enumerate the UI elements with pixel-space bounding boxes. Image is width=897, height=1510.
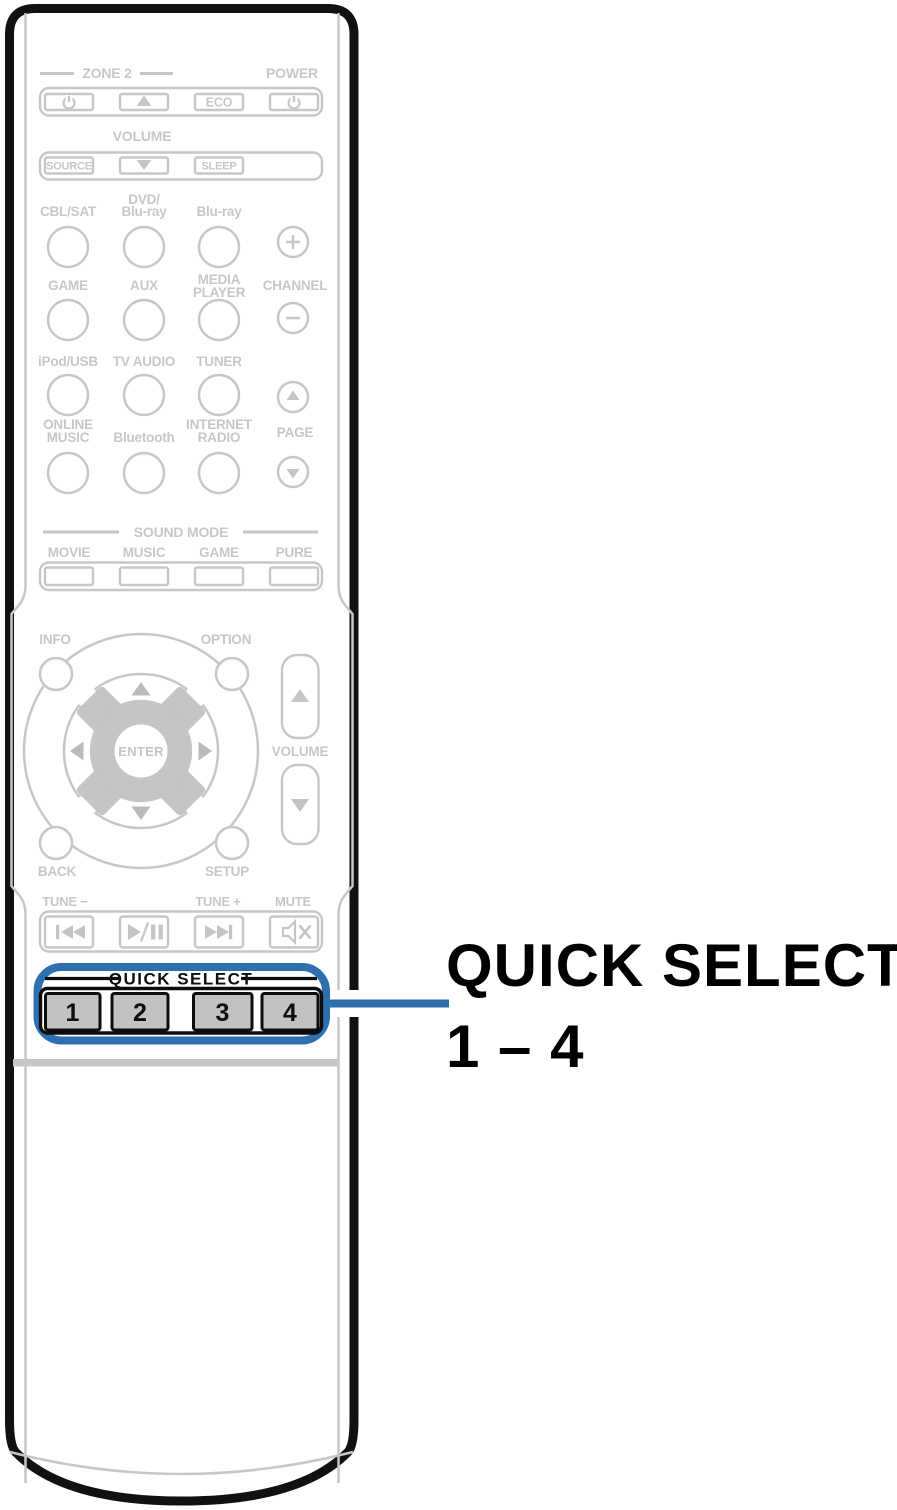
- game-mode-label: GAME: [199, 545, 239, 560]
- option-label: OPTION: [201, 632, 252, 647]
- cbl-sat-label: CBL/SAT: [40, 204, 97, 219]
- bluetooth-label: Bluetooth: [113, 430, 174, 445]
- quick-select-1-label: 1: [66, 999, 80, 1027]
- media-player-button: [199, 300, 239, 340]
- quick-select-4-label: 4: [283, 999, 297, 1027]
- power-label: POWER: [266, 65, 318, 81]
- music-button: [120, 568, 168, 586]
- sound-mode-label: SOUND MODE: [134, 524, 228, 540]
- dvd-label-line2: Blu-ray: [121, 204, 167, 219]
- quick-select-label: QUICK SELECT: [109, 970, 254, 989]
- eco-button-label: ECO: [206, 96, 233, 110]
- bluetooth-button: [124, 453, 164, 493]
- ipod-usb-button: [48, 375, 88, 415]
- movie-label: MOVIE: [48, 545, 91, 560]
- setup-label: SETUP: [205, 864, 249, 879]
- game-mode-button: [195, 568, 243, 586]
- internet-radio-button: [199, 453, 239, 493]
- online-music-button: [48, 453, 88, 493]
- tv-audio-label: TV AUDIO: [113, 354, 175, 369]
- cbl-sat-button: [48, 227, 88, 267]
- volume-label-top: VOLUME: [113, 128, 172, 144]
- bluray-label: Blu-ray: [196, 204, 242, 219]
- page-label: PAGE: [277, 425, 314, 440]
- callout: QUICK SELECT 1 – 4: [446, 932, 897, 1080]
- cursor-cross: ENTER: [75, 685, 207, 817]
- volume-label: VOLUME: [272, 744, 329, 759]
- internet-radio-label-line2: RADIO: [198, 430, 241, 445]
- pure-button: [270, 568, 318, 586]
- setup-button: [216, 827, 248, 859]
- aux-button: [124, 300, 164, 340]
- back-button: [40, 827, 72, 859]
- movie-button: [45, 568, 93, 586]
- manual-illustration: ZONE 2 POWER ECO VOLUME SOURCE SLEEP: [0, 0, 897, 1510]
- tune-minus-label: TUNE −: [42, 894, 88, 909]
- aux-label: AUX: [130, 278, 158, 293]
- source-button-label: SOURCE: [46, 161, 92, 173]
- music-label: MUSIC: [123, 545, 166, 560]
- channel-label: CHANNEL: [263, 278, 328, 293]
- info-label: INFO: [39, 632, 70, 647]
- mute-label: MUTE: [275, 894, 312, 909]
- remote-diagram: ZONE 2 POWER ECO VOLUME SOURCE SLEEP: [0, 0, 897, 1510]
- tune-plus-label: TUNE +: [195, 894, 241, 909]
- online-music-label-line2: MUSIC: [47, 430, 90, 445]
- game-label: GAME: [48, 278, 88, 293]
- option-button: [216, 658, 248, 690]
- callout-title-line1: QUICK SELECT: [446, 932, 897, 999]
- quick-select-2-label: 2: [133, 999, 147, 1027]
- enter-label: ENTER: [118, 744, 164, 759]
- info-button: [40, 658, 72, 690]
- callout-title-line2: 1 – 4: [446, 1013, 584, 1080]
- media-player-label-line2: PLAYER: [193, 285, 246, 300]
- game-button: [48, 300, 88, 340]
- bluray-button: [199, 227, 239, 267]
- zone2-label: ZONE 2: [82, 65, 132, 81]
- tuner-button: [199, 375, 239, 415]
- quick-select-3-label: 3: [216, 999, 230, 1027]
- body-divider-band: [13, 1059, 338, 1067]
- dvd-button: [124, 227, 164, 267]
- ipod-usb-label: iPod/USB: [38, 354, 98, 369]
- back-label: BACK: [38, 864, 77, 879]
- quick-select-section: QUICK SELECT 1 2 3 4: [38, 967, 327, 1041]
- sleep-button-label: SLEEP: [201, 161, 236, 173]
- tv-audio-button: [124, 375, 164, 415]
- pure-label: PURE: [276, 545, 313, 560]
- tuner-label: TUNER: [196, 354, 242, 369]
